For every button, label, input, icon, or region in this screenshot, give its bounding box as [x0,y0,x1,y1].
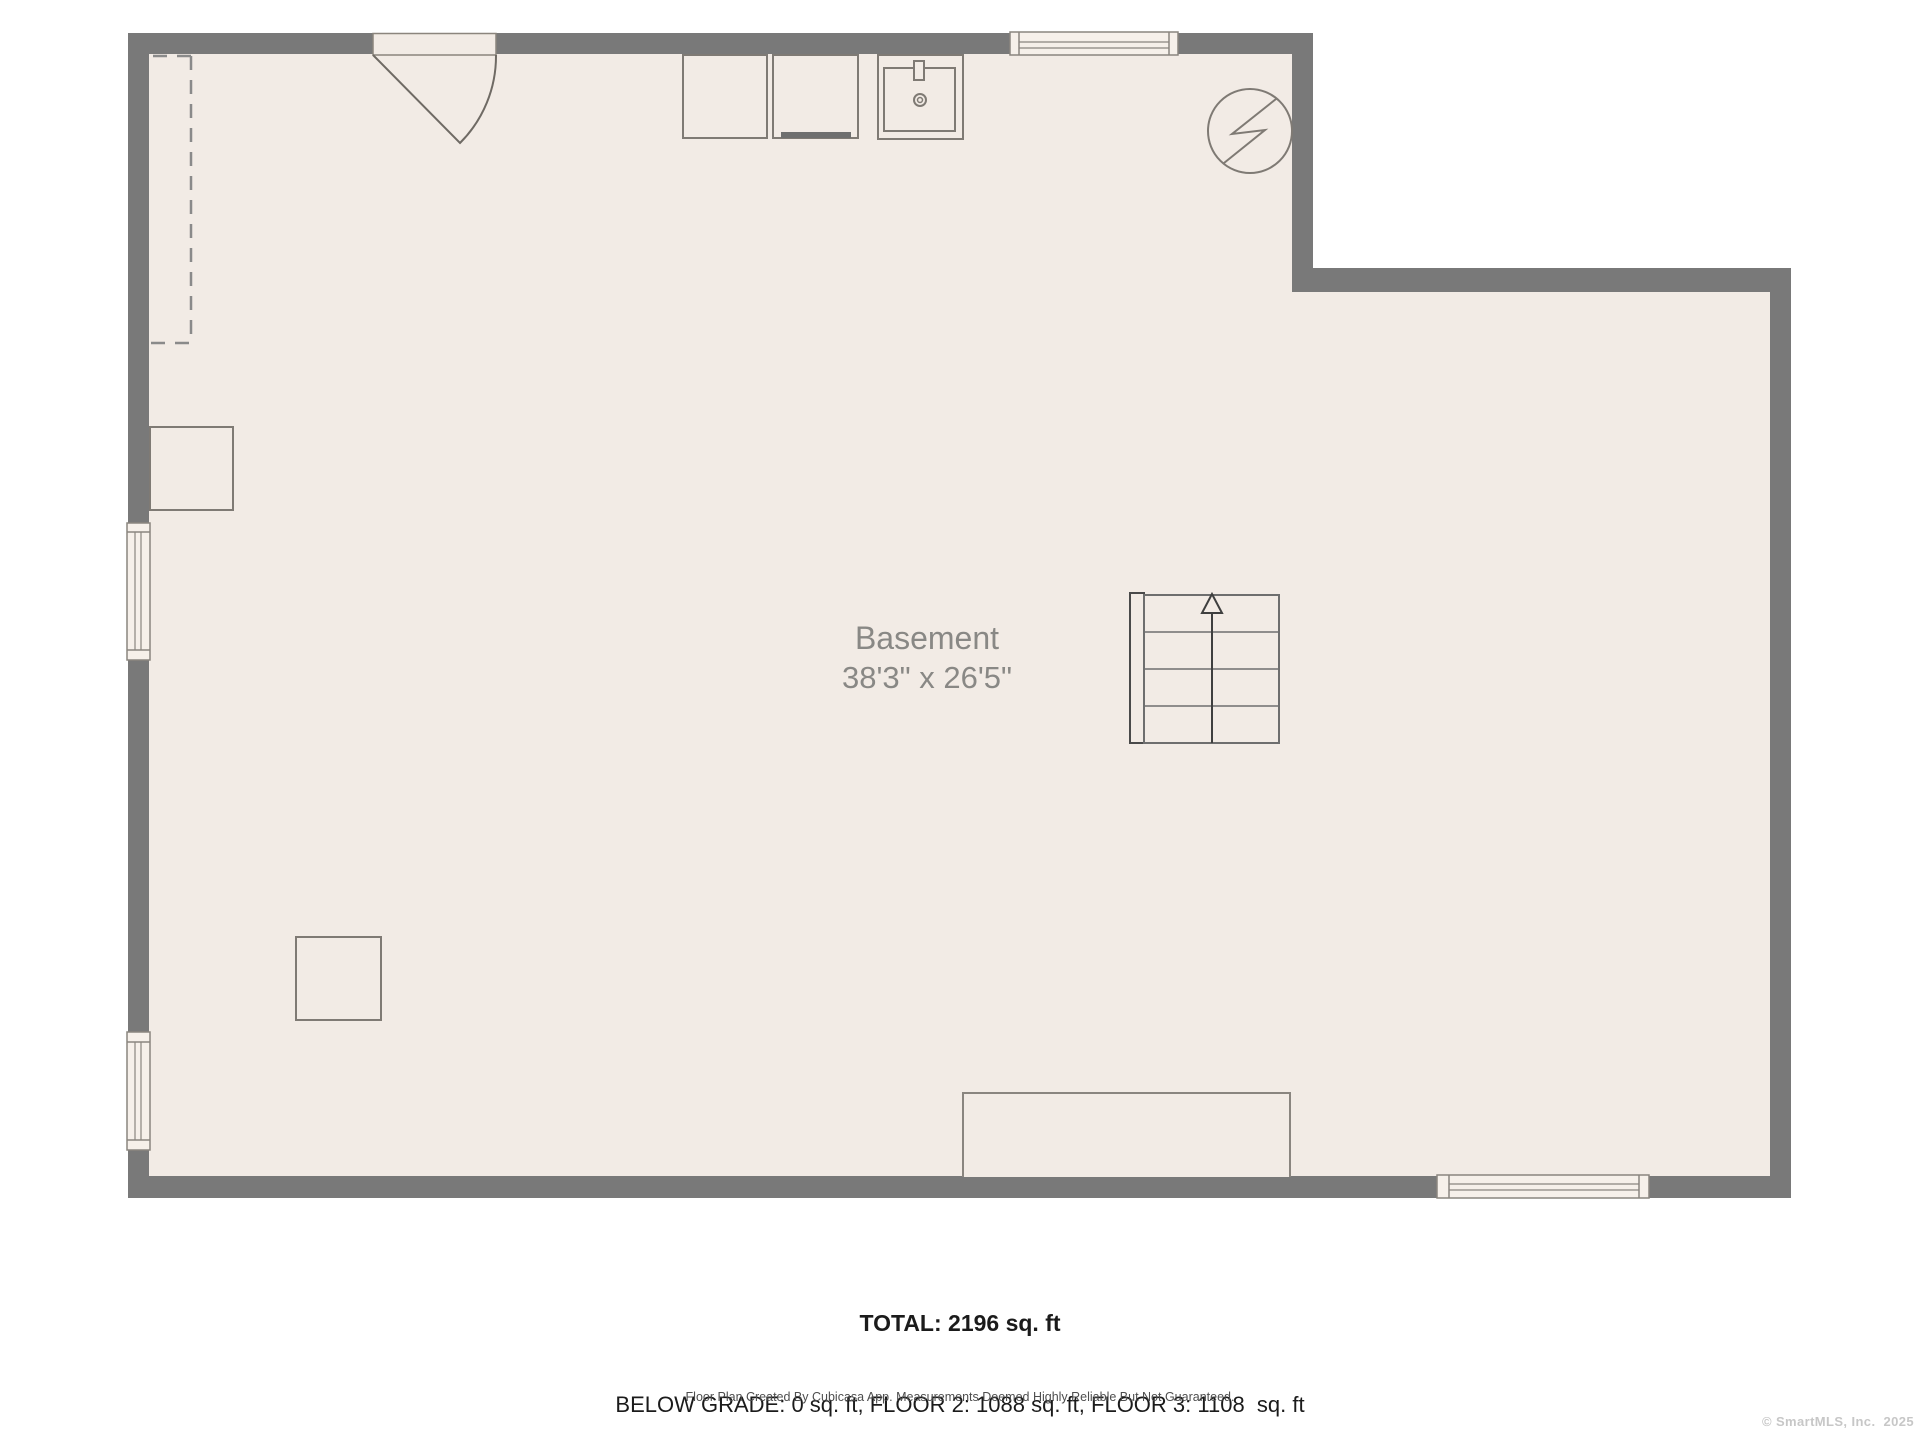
faucet-icon [914,61,924,80]
floor-plan-page: Basement 38'3" x 26'5" TOTAL: 2196 sq. f… [0,0,1920,1440]
dryer [773,55,858,138]
support-post [296,937,381,1020]
basement-entry-box [963,1093,1290,1177]
room-label: Basement 38'3" x 26'5" [842,618,1012,698]
dryer-door-bar [781,132,851,138]
window-left-lower [127,1032,150,1150]
summary-total: TOTAL: 2196 sq. ft [0,1310,1920,1337]
water-heater-icon [1208,89,1292,173]
disclaimer-text: Floor Plan Created By Cubicasa App. Meas… [0,1390,1920,1404]
room-dimensions: 38'3" x 26'5" [842,658,1012,698]
window-top [1010,32,1178,55]
wall-cabinet [150,427,233,510]
door-opening [373,34,496,56]
staircase [1130,593,1279,743]
area-summary: TOTAL: 2196 sq. ft BELOW GRADE: 0 sq. ft… [0,1256,1920,1440]
copyright-watermark: © SmartMLS, Inc. 2025 [1762,1414,1914,1429]
window-bottom [1437,1175,1649,1198]
stair-rail [1130,593,1144,743]
washer [683,55,767,138]
basement-floor [149,54,1770,1176]
window-left-upper [127,523,150,660]
laundry-sink [878,55,963,139]
room-name: Basement [842,618,1012,658]
